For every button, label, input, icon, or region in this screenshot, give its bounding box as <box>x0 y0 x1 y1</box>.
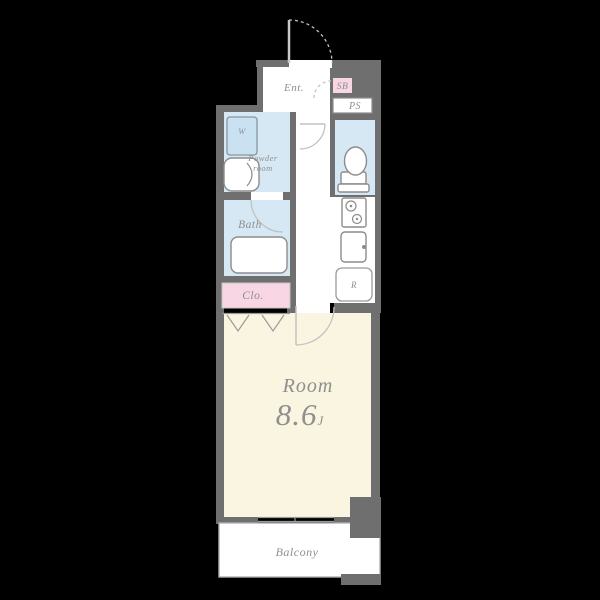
corridor-floor <box>296 112 330 313</box>
balcony-label: Balcony <box>276 545 319 559</box>
refrigerator-label: R <box>350 280 357 290</box>
bathtub-icon <box>231 237 287 273</box>
entrance-label: Ent. <box>283 82 304 94</box>
powder-room-label-1: Powder <box>247 153 278 163</box>
wall-right-room <box>371 313 380 497</box>
floor-plan: Ent. SB PS W Powder room Bath Clo. R Roo… <box>0 0 600 600</box>
room-label: Room <box>282 375 334 397</box>
wall-left-outer <box>216 105 224 524</box>
entry-corridor-opening <box>303 105 330 112</box>
faucet-dot <box>362 245 366 249</box>
room-area-unit: J <box>317 413 324 428</box>
stove-burner-dot <box>350 205 353 208</box>
pillar <box>350 497 381 538</box>
wall-bath-closet <box>222 276 290 283</box>
balcony-bottom-wall <box>341 574 381 585</box>
entry-door-opening <box>289 60 332 68</box>
toilet-bowl-icon <box>345 147 367 175</box>
room-area-value: 8.6 <box>276 397 318 432</box>
wall-room-top-right <box>334 303 372 313</box>
bath-label: Bath <box>238 219 262 231</box>
closet-label: Clo. <box>242 290 264 302</box>
bath-door-opening <box>251 192 283 200</box>
stove-burner-dot <box>356 218 358 220</box>
wall-entry-left <box>257 60 263 112</box>
toilet-base-icon <box>338 184 369 192</box>
washer-box-icon <box>227 117 257 155</box>
shoe-box-label: SB <box>337 82 349 92</box>
room-area-label: 8.6J <box>276 397 325 432</box>
pipe-space-label: PS <box>348 101 361 112</box>
washer-label: W <box>238 126 246 136</box>
powder-room-label-2: room <box>253 163 273 173</box>
